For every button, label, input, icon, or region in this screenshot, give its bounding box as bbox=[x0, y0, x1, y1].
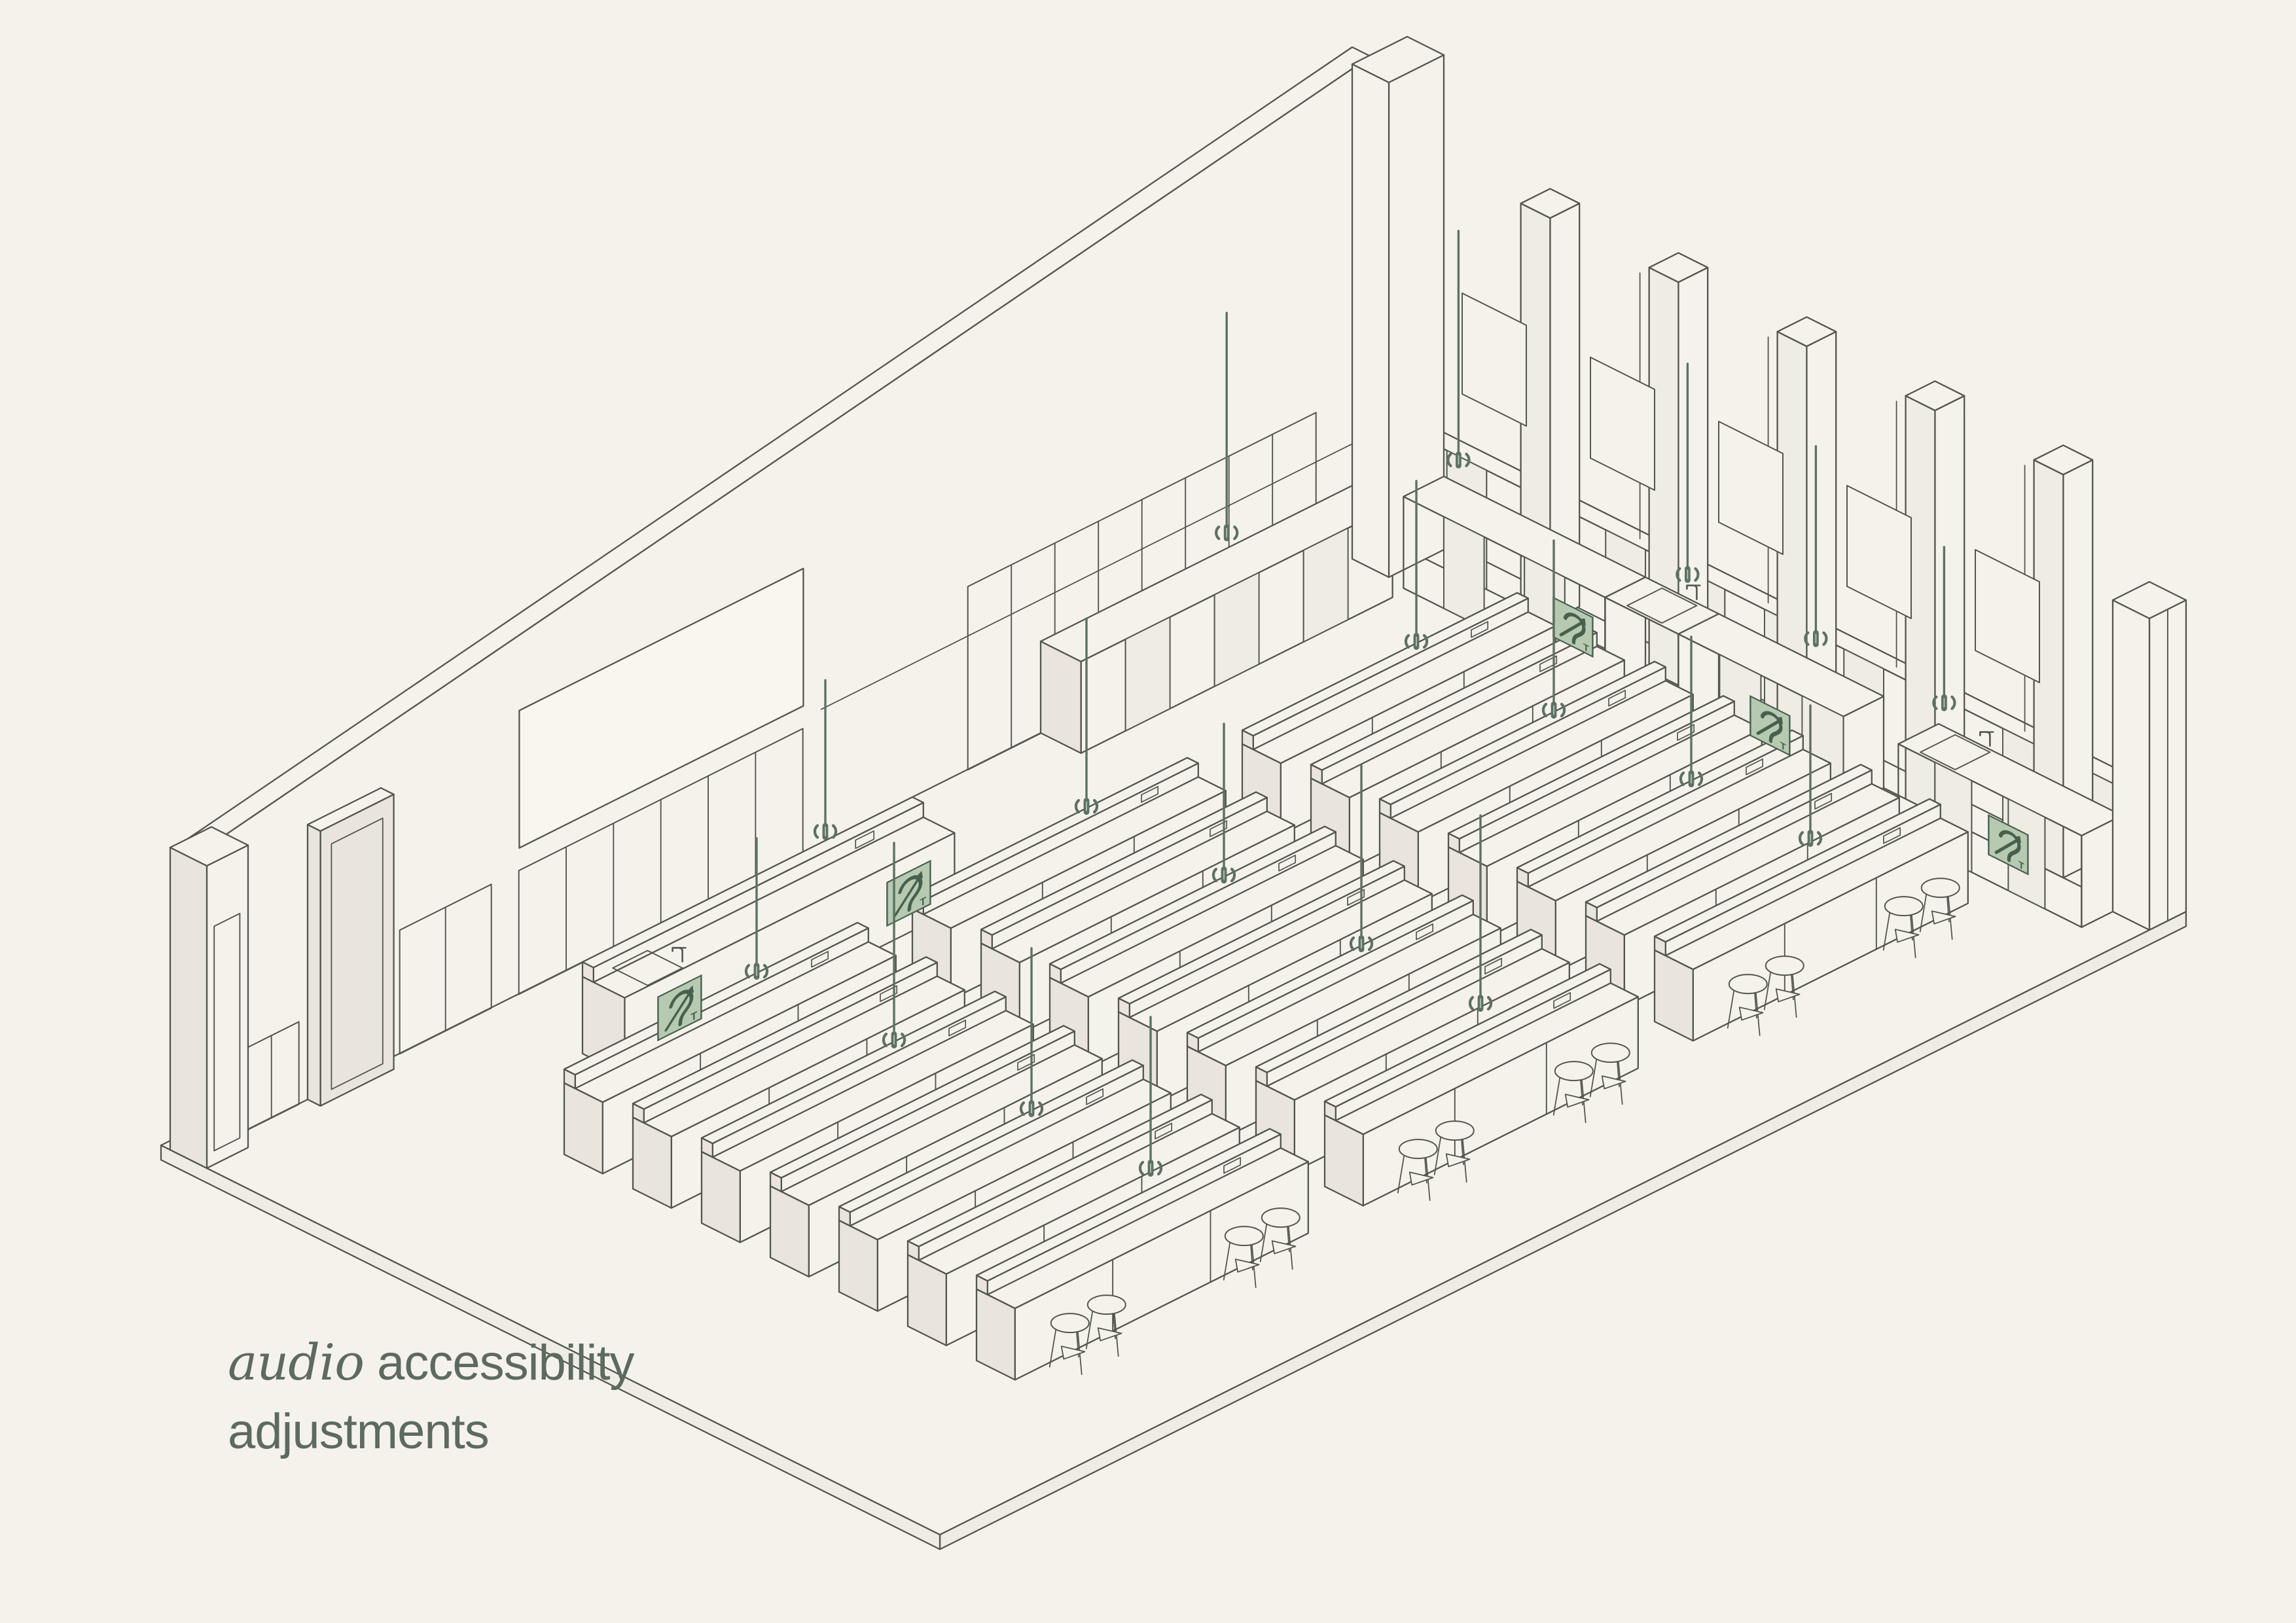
left-end-wall bbox=[170, 827, 248, 1169]
pillar-board bbox=[1719, 421, 1783, 554]
east-corner-pier bbox=[2113, 582, 2186, 930]
title-line-1: audio accessibility bbox=[228, 1329, 634, 1398]
room: TTTTT bbox=[161, 37, 2186, 1549]
back-wall-door bbox=[308, 788, 394, 1106]
pillar-board bbox=[1590, 357, 1655, 490]
title-rest-words: accessibility bbox=[364, 1335, 634, 1391]
pillar-board bbox=[1847, 486, 1911, 618]
diagram-title: audio accessibility adjustments bbox=[228, 1329, 634, 1467]
pillar-board bbox=[1462, 293, 1526, 426]
pillar-board bbox=[1975, 550, 2039, 683]
title-line-2: adjustments bbox=[228, 1398, 634, 1467]
poster-canvas: TTTTT audio accessibility adjustments bbox=[0, 0, 2296, 1623]
title-italic-word: audio bbox=[228, 1333, 364, 1391]
tap-icon bbox=[1980, 732, 1993, 746]
